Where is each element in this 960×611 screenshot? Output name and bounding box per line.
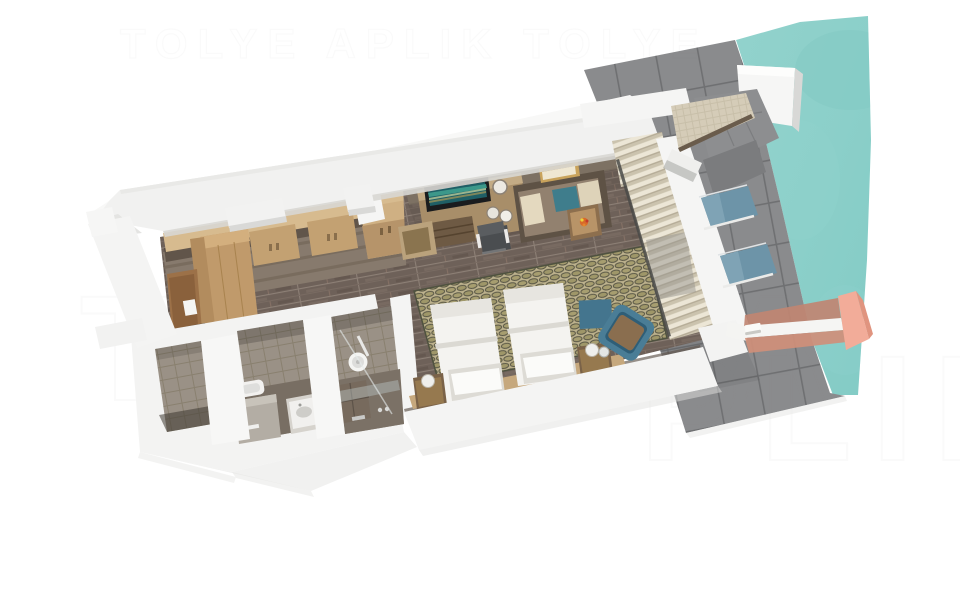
- svg-text:TOLYE APLIK TOLYE: TOLYE APLIK TOLYE: [120, 20, 709, 67]
